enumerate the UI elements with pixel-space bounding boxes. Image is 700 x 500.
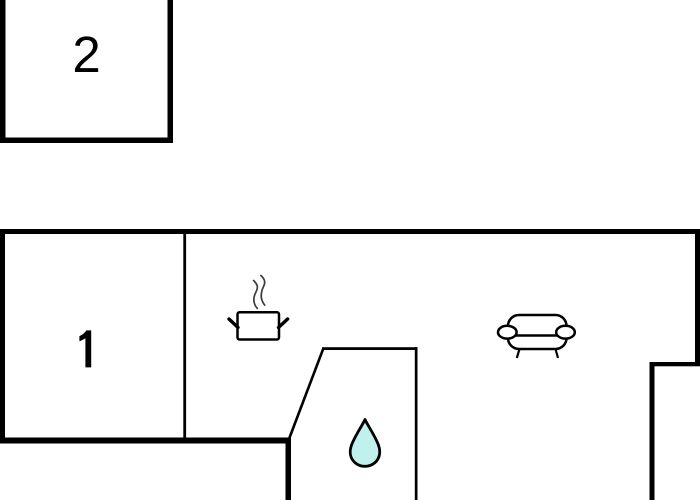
svg-text:2: 2 [72, 26, 100, 83]
